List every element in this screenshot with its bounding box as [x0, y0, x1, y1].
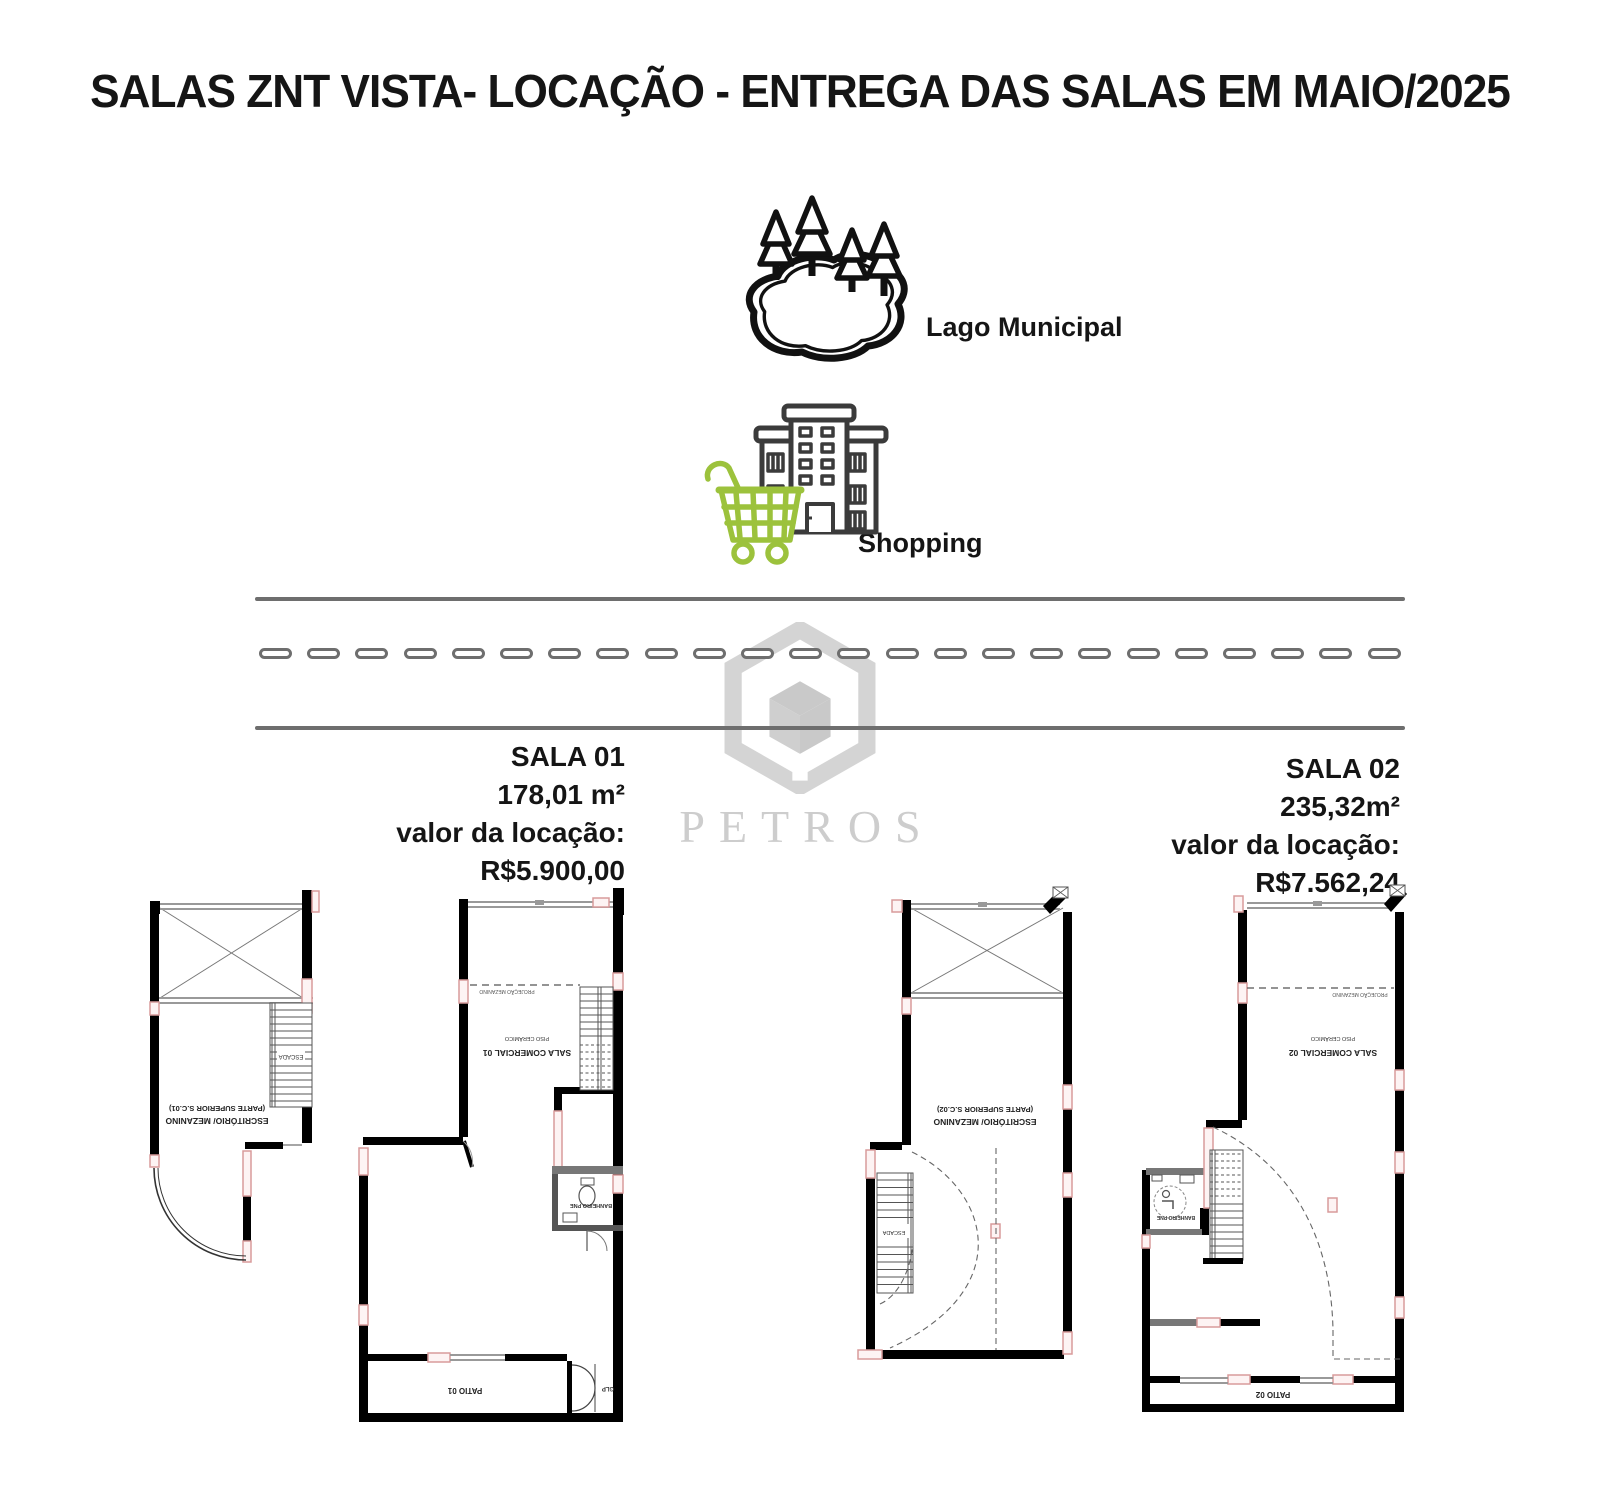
- road-dash-row: [259, 648, 1401, 659]
- room-label-line1: ESCRITÓRIO/ MEZANINO: [933, 1117, 1036, 1128]
- road-dash: [1078, 648, 1111, 659]
- road-dash: [982, 648, 1015, 659]
- road-dash: [1368, 648, 1401, 659]
- patio-label: PATIO 02: [1255, 1390, 1290, 1399]
- road-dash: [837, 648, 870, 659]
- unit-area: 178,01 m²: [265, 776, 625, 814]
- watermark-brand: PETROS: [650, 800, 950, 853]
- floor-plan-drawing: PROJEÇÃO MEZANINO BANHEIRO PNE GLP PATIO…: [355, 875, 635, 1425]
- shopping-cart-group: [698, 452, 823, 567]
- room-label-line2: (PARTE SUPERIOR S.C.02): [936, 1105, 1033, 1114]
- lake-group: [730, 192, 915, 382]
- page-title: SALAS ZNT VISTA- LOCAÇÃO - ENTREGA DAS S…: [32, 64, 1568, 118]
- floor-plan-mezanino-sc01: ESCADA (PARTE SUPERIOR S.C.01) ESCRITÓRI…: [145, 878, 375, 1270]
- patio-label: PATIO 01: [447, 1386, 482, 1395]
- floor-note-label: PISO CERÂMICO: [1310, 1035, 1355, 1042]
- room-label-line1: ESCRITÓRIO/ MEZANINO: [165, 1116, 268, 1127]
- road-dash: [500, 648, 533, 659]
- road-dash: [259, 648, 292, 659]
- stairs-label: ESCADA: [882, 1229, 905, 1235]
- road-dash: [452, 648, 485, 659]
- shopping-cart-icon: [698, 452, 823, 567]
- unit-info-sala-01: SALA 01 178,01 m² valor da locação: R$5.…: [265, 738, 625, 890]
- stairs-label: ESCADA: [279, 1053, 304, 1059]
- room-label: SALA COMERCIAL 01: [483, 1048, 572, 1058]
- road-dash: [548, 648, 581, 659]
- gas-room-label: GLP: [602, 1385, 614, 1391]
- road-dash: [355, 648, 388, 659]
- road-dash: [645, 648, 678, 659]
- unit-area: 235,32m²: [1040, 788, 1400, 826]
- lake-with-pine-trees-icon: [730, 192, 915, 382]
- road-dash: [307, 648, 340, 659]
- road-dash: [1223, 648, 1256, 659]
- unit-name: SALA 02: [1040, 750, 1400, 788]
- bathroom-label: BANHEIRO PNE: [1156, 1214, 1195, 1220]
- road-dash: [1319, 648, 1352, 659]
- floor-note-label: PISO CERÂMICO: [504, 1035, 549, 1042]
- road: [255, 597, 1405, 733]
- road-dash: [404, 648, 437, 659]
- road-dash: [789, 648, 822, 659]
- lake-label: Lago Municipal: [926, 312, 1123, 343]
- road-dash: [1175, 648, 1208, 659]
- floor-plan-drawing: PROJEÇÃO MEZANINO BANHEIRO PNE PATIO 02 …: [1138, 872, 1408, 1417]
- road-dash: [934, 648, 967, 659]
- projection-label: PROJEÇÃO MEZANINO: [479, 988, 534, 995]
- room-label-line2: (PARTE SUPERIOR S.C.01): [168, 1104, 265, 1113]
- road-bottom-line: [255, 726, 1405, 730]
- floor-plan-drawing: ESCADA (PARTE SUPERIOR S.C.01) ESCRITÓRI…: [145, 878, 375, 1270]
- projection-label: PROJEÇÃO MEZANINO: [1332, 991, 1387, 998]
- bathroom-label: BANHEIRO PNE: [570, 1202, 613, 1208]
- floor-plan-sala-comercial-02: PROJEÇÃO MEZANINO BANHEIRO PNE PATIO 02 …: [1138, 872, 1408, 1417]
- unit-name: SALA 01: [265, 738, 625, 776]
- floor-plan-sala-comercial-01: PROJEÇÃO MEZANINO BANHEIRO PNE GLP PATIO…: [355, 875, 635, 1425]
- floor-plan-drawing: ESCADA (PARTE SUPERIOR S.C.02) ESCRITÓRI…: [850, 872, 1082, 1364]
- floor-plan-mezanino-sc02: ESCADA (PARTE SUPERIOR S.C.02) ESCRITÓRI…: [850, 872, 1082, 1364]
- road-dash: [1271, 648, 1304, 659]
- road-dash: [596, 648, 629, 659]
- road-top-line: [255, 597, 1405, 601]
- road-dash: [741, 648, 774, 659]
- road-dash: [886, 648, 919, 659]
- road-dash: [1030, 648, 1063, 659]
- road-dash: [1127, 648, 1160, 659]
- road-dash: [693, 648, 726, 659]
- room-label: SALA COMERCIAL 02: [1289, 1048, 1378, 1058]
